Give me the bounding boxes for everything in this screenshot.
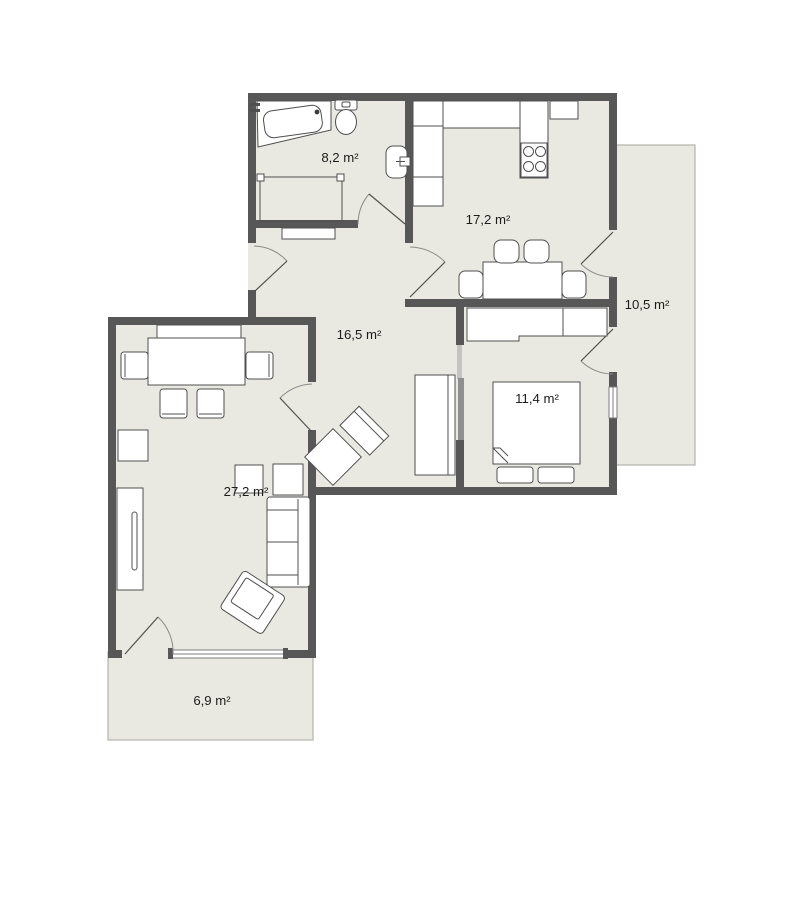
kitchen-chair	[562, 271, 586, 298]
bathtub-faucet-icon	[250, 103, 260, 106]
wall-living-south-left	[108, 650, 122, 658]
wall-west-living	[108, 317, 116, 658]
dining-chair	[160, 389, 187, 418]
dining-chair	[246, 352, 273, 379]
bedroom-wardrobe-2	[563, 308, 607, 336]
wall-living-east-upper	[308, 325, 316, 382]
stove	[521, 143, 547, 177]
dining-chair	[197, 389, 224, 418]
kitchen-chair	[494, 240, 519, 263]
pillow	[497, 467, 533, 483]
pillow	[538, 467, 574, 483]
living-dining-table	[148, 338, 245, 385]
hallway-shelf	[282, 228, 335, 239]
hallway-wardrobe	[415, 375, 455, 475]
kitchen-counter-right	[550, 101, 578, 119]
room-label-bedroom: 11,4 m²	[515, 391, 559, 406]
wall-bedroom-west-lower	[456, 440, 464, 495]
kitchen-counter-left	[413, 101, 443, 206]
toilet	[335, 100, 357, 135]
room-label-balcony-right: 10,5 m²	[625, 297, 670, 312]
bedroom-wardrobe	[467, 308, 563, 341]
bedroom-window	[609, 387, 617, 418]
sofa	[267, 497, 310, 587]
room-label-kitchen: 17,2 m²	[466, 212, 511, 227]
kitchen-dining-table	[483, 262, 562, 299]
floor-plan-canvas: 8,2 m² 17,2 m² 16,5 m² 11,4 m² 27,2 m² 1…	[0, 0, 787, 905]
sideboard	[157, 325, 241, 338]
kitchen-counter-top	[443, 101, 520, 128]
wall-kitchen-bedroom-divider	[405, 299, 617, 307]
floor-plan: 8,2 m² 17,2 m² 16,5 m² 11,4 m² 27,2 m² 1…	[0, 0, 787, 905]
wall-east-mid1	[609, 277, 617, 327]
tv-board	[117, 488, 143, 590]
dining-chair	[121, 352, 148, 379]
washbasin	[386, 146, 410, 178]
side-table-left	[118, 430, 148, 461]
room-label-bathroom: 8,2 m²	[321, 150, 359, 165]
wall-east-south	[609, 418, 617, 495]
side-table-sofa	[273, 464, 303, 495]
kitchen-chair	[459, 271, 483, 298]
wall-top	[248, 93, 617, 101]
room-label-hallway: 16,5 m²	[337, 327, 382, 342]
wall-east-north	[609, 93, 617, 230]
room-label-balcony-bottom: 6,9 m²	[193, 693, 231, 708]
room-label-living-room: 27,2 m²	[224, 484, 269, 499]
wall-bedroom-west-upper	[456, 307, 464, 345]
kitchen-chair	[524, 240, 549, 263]
wall-living-north	[108, 317, 316, 325]
living-room-window	[168, 648, 288, 659]
